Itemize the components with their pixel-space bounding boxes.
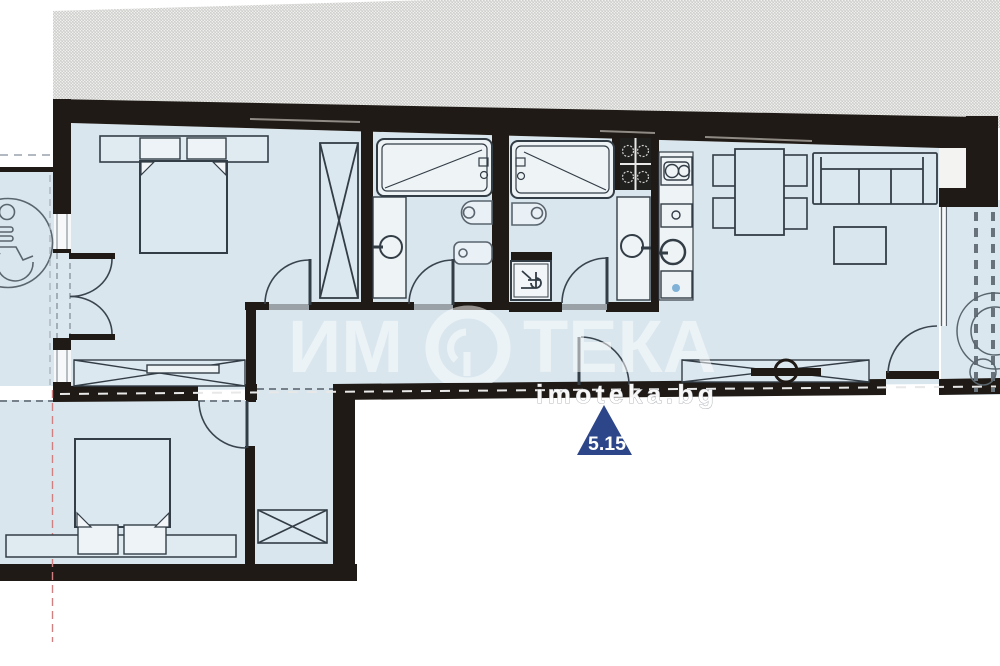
- svg-text:imoteka.bg: imoteka.bg: [536, 379, 718, 409]
- svg-text:ИМ: ИМ: [288, 305, 403, 388]
- svg-text:ТЕКА: ТЕКА: [523, 305, 716, 388]
- svg-text:5.15: 5.15: [588, 433, 626, 455]
